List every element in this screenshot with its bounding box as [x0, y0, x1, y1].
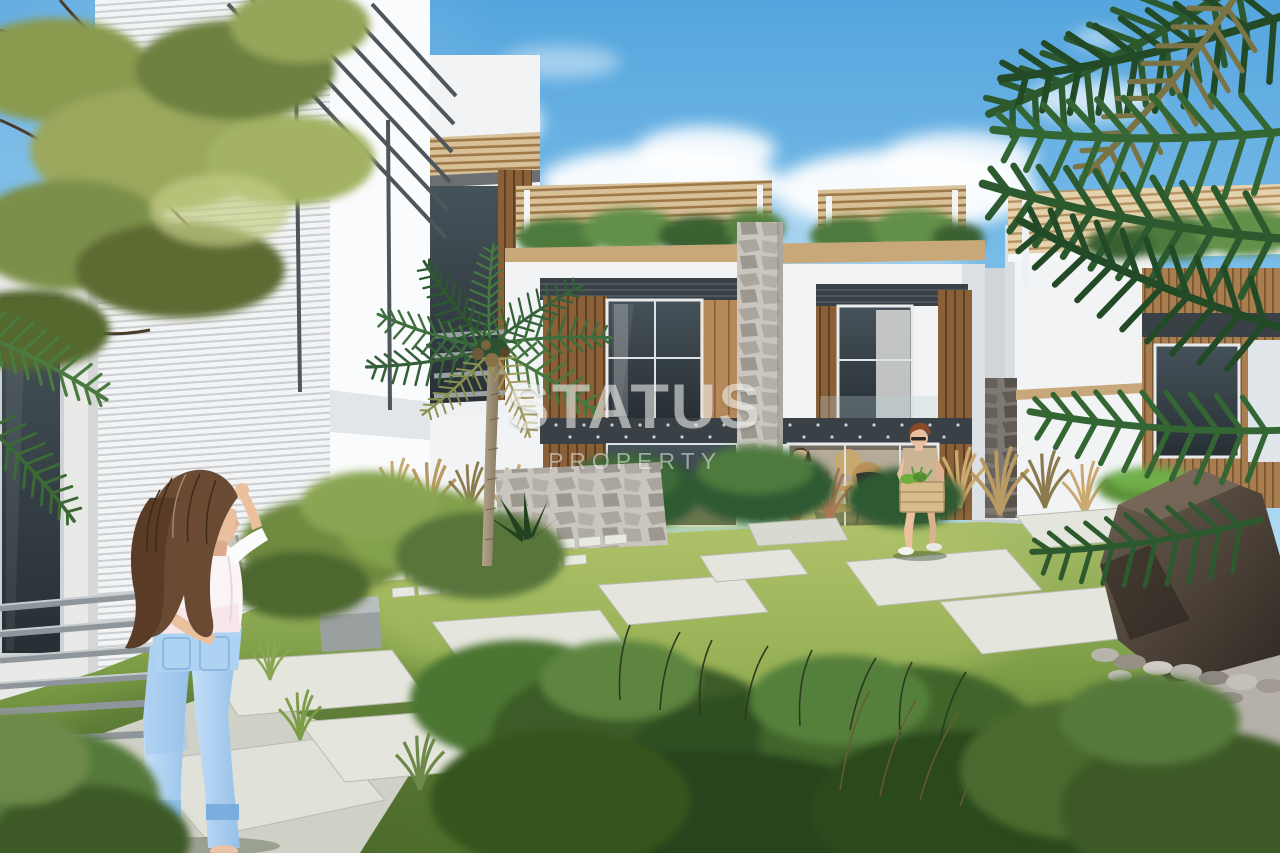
property-render-image: STATUS PROPERTY — [0, 0, 1280, 853]
render-artwork — [0, 0, 1280, 853]
